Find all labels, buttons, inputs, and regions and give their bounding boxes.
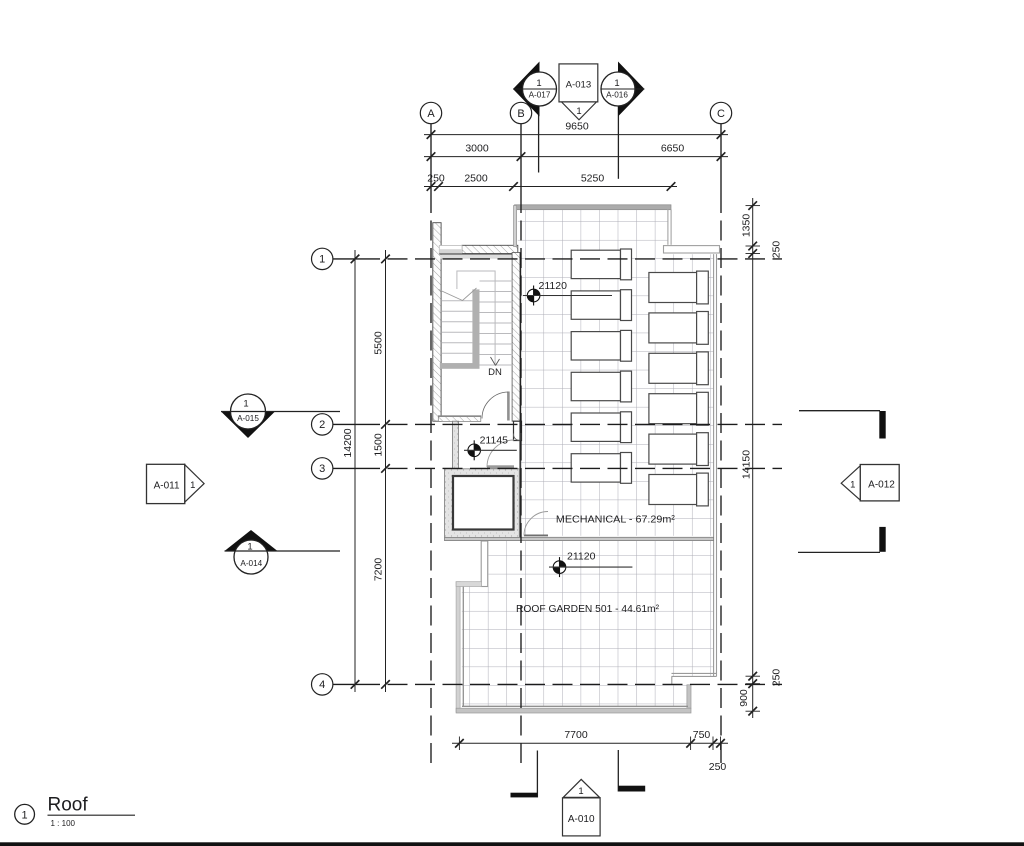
svg-text:3: 3 [319, 463, 325, 475]
svg-text:250: 250 [709, 761, 727, 773]
svg-text:250: 250 [771, 241, 783, 259]
svg-text:14150: 14150 [740, 450, 752, 479]
svg-text:1: 1 [536, 78, 541, 89]
svg-text:A-017: A-017 [529, 90, 551, 99]
svg-text:1 : 100: 1 : 100 [51, 819, 76, 828]
svg-text:1: 1 [190, 480, 195, 491]
svg-text:MECHANICAL - 67.29m²: MECHANICAL - 67.29m² [556, 515, 676, 526]
svg-text:14200: 14200 [342, 428, 354, 457]
svg-text:A: A [427, 108, 435, 120]
svg-text:A-016: A-016 [606, 90, 628, 99]
svg-text:1: 1 [319, 254, 325, 266]
svg-text:ROOF GARDEN 501 - 44.61m²: ROOF GARDEN 501 - 44.61m² [516, 604, 660, 615]
svg-text:1: 1 [22, 809, 28, 821]
svg-text:A-011: A-011 [154, 480, 180, 491]
svg-text:21120: 21120 [567, 551, 596, 563]
svg-text:2: 2 [319, 419, 325, 431]
svg-text:7200: 7200 [372, 558, 384, 582]
svg-text:DN: DN [488, 367, 502, 378]
svg-text:1500: 1500 [372, 433, 384, 457]
svg-text:1: 1 [614, 78, 619, 89]
svg-text:1: 1 [243, 399, 248, 410]
svg-text:21120: 21120 [539, 280, 568, 292]
svg-text:A-015: A-015 [237, 414, 259, 423]
svg-text:A-013: A-013 [566, 79, 592, 90]
svg-text:9650: 9650 [565, 120, 589, 132]
svg-text:1: 1 [850, 480, 855, 491]
svg-text:1: 1 [578, 786, 583, 797]
svg-text:A-010: A-010 [568, 814, 595, 825]
svg-text:250: 250 [427, 172, 445, 184]
svg-text:250: 250 [771, 669, 783, 687]
svg-text:3000: 3000 [465, 142, 489, 154]
svg-text:1350: 1350 [740, 214, 752, 238]
svg-text:Roof: Roof [48, 794, 89, 815]
svg-text:6650: 6650 [661, 142, 685, 154]
svg-text:5250: 5250 [581, 172, 605, 184]
svg-text:900: 900 [738, 689, 750, 707]
svg-text:A-014: A-014 [240, 559, 262, 568]
svg-text:750: 750 [693, 729, 711, 741]
svg-text:21145: 21145 [480, 435, 509, 447]
svg-text:1: 1 [247, 542, 252, 553]
svg-text:4: 4 [319, 679, 325, 691]
svg-text:7700: 7700 [564, 729, 588, 741]
svg-text:C: C [717, 108, 725, 120]
svg-text:1: 1 [576, 106, 581, 117]
svg-text:2500: 2500 [464, 172, 488, 184]
svg-text:A-012: A-012 [868, 480, 895, 491]
svg-text:B: B [517, 108, 524, 120]
svg-text:5500: 5500 [372, 331, 384, 355]
